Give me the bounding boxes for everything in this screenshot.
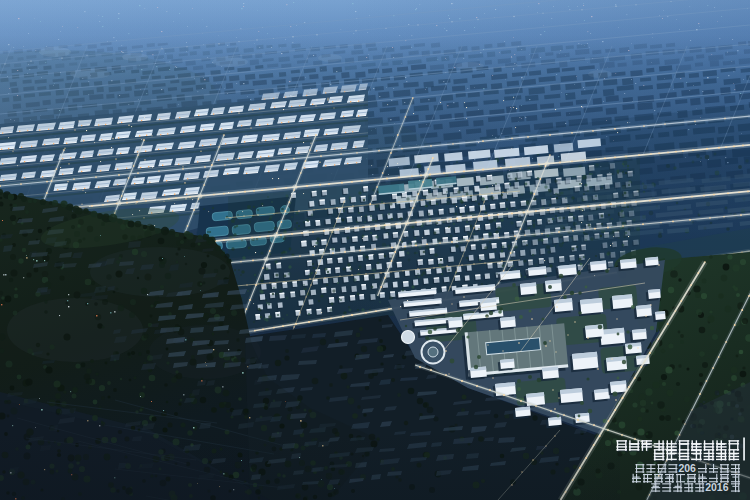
svg-text:206: 206 bbox=[678, 462, 696, 474]
svg-text:2016: 2016 bbox=[705, 481, 729, 493]
